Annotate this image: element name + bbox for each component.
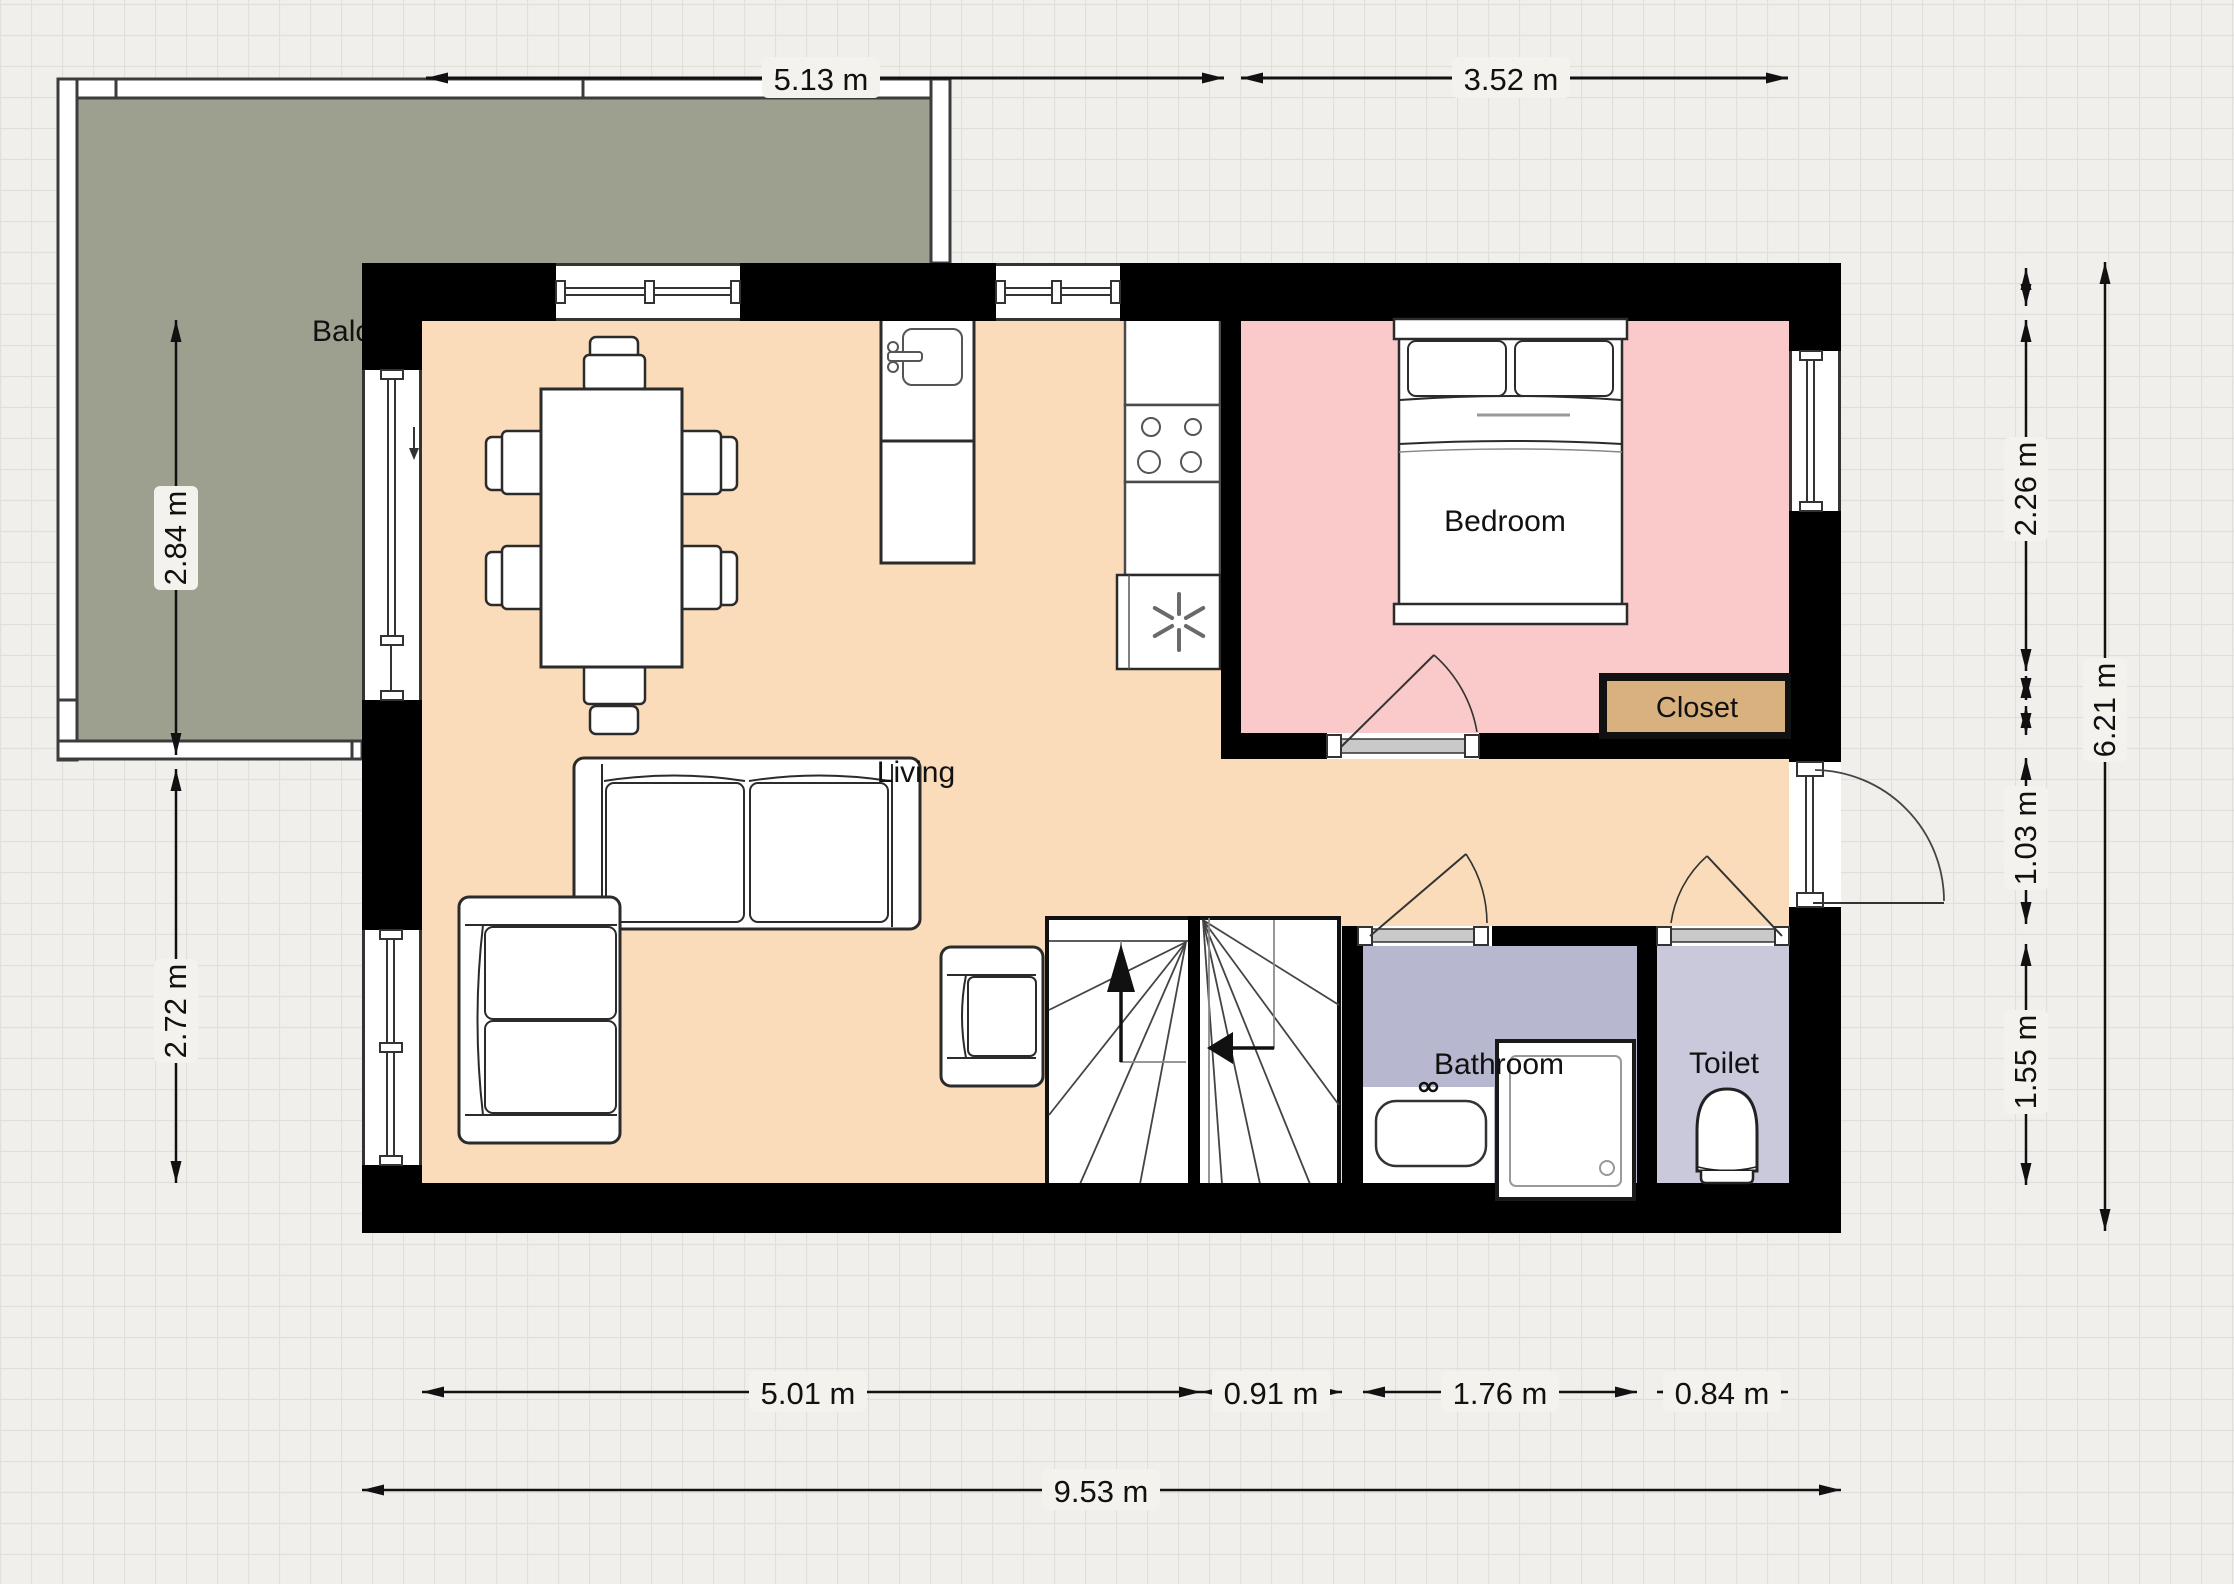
svg-text:2.26 m: 2.26 m <box>2008 442 2043 537</box>
svg-text:2.72 m: 2.72 m <box>158 964 193 1059</box>
svg-text:3.52 m: 3.52 m <box>1464 62 1559 97</box>
svg-text:9.53 m: 9.53 m <box>1054 1474 1149 1509</box>
svg-text:Toilet: Toilet <box>1689 1047 1760 1080</box>
svg-text:5.01 m: 5.01 m <box>761 1376 856 1411</box>
svg-text:Bedroom: Bedroom <box>1444 505 1566 538</box>
svg-text:2.84 m: 2.84 m <box>158 491 193 586</box>
svg-text:6.21 m: 6.21 m <box>2087 663 2122 758</box>
svg-text:1.55 m: 1.55 m <box>2008 1015 2043 1110</box>
svg-text:5.13 m: 5.13 m <box>774 62 869 97</box>
svg-text:Bathroom: Bathroom <box>1434 1048 1564 1081</box>
svg-text:0.91 m: 0.91 m <box>1224 1376 1319 1411</box>
svg-text:0.84 m: 0.84 m <box>1675 1376 1770 1411</box>
svg-text:1.03 m: 1.03 m <box>2008 791 2043 886</box>
svg-text:Living: Living <box>877 756 955 789</box>
svg-text:1.76 m: 1.76 m <box>1453 1376 1548 1411</box>
svg-text:Closet: Closet <box>1656 692 1738 724</box>
